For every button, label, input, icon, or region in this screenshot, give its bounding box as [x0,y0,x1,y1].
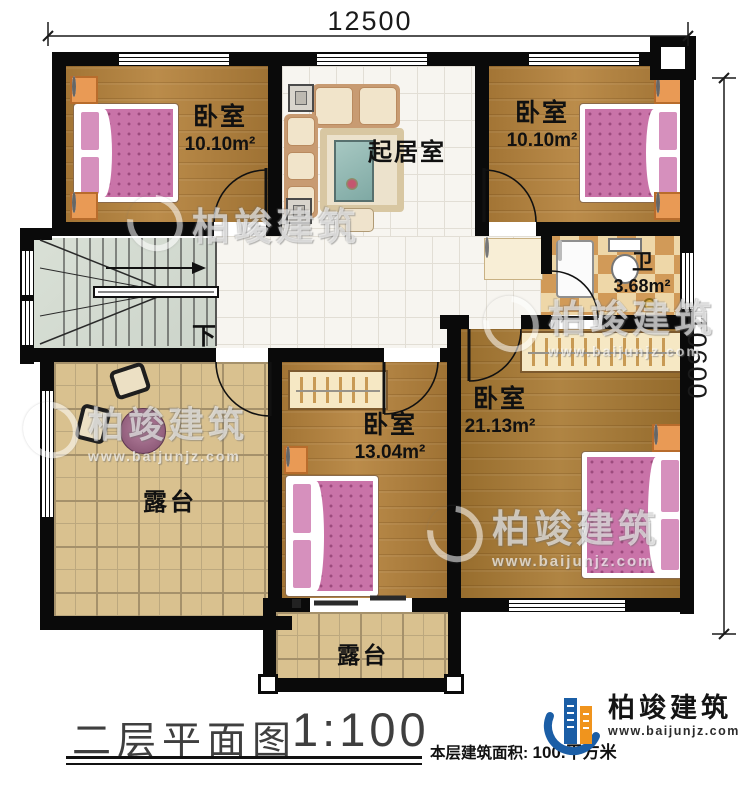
tv-stand [288,84,314,112]
pillows [660,459,680,571]
wardrobe-rod [528,352,676,354]
brand-logo: 柏竣建筑 www.baijunjz.com [540,694,740,764]
brand-building-icon [540,694,604,764]
wall [52,222,214,236]
ottoman [338,208,374,232]
title-underline-thin [66,763,422,765]
wall [20,228,52,240]
wall [475,222,484,236]
window [528,52,640,66]
room-label-bedroom-large: 卧室 21.13m² [440,384,560,439]
pillows [658,111,678,195]
washing-machine [556,240,594,298]
lamp-icon [72,192,76,213]
pillows [80,111,100,195]
room-label-bedroom-top-right: 卧室 10.10m² [482,98,602,153]
wardrobe [288,370,388,410]
window [316,52,428,66]
pin-decor [643,298,656,311]
lamp-icon [656,192,660,213]
plan-scale: 1:100 [292,702,430,757]
window [508,598,626,612]
floor-plan: 12500 10600 [0,0,750,785]
lamp-icon [72,76,76,97]
quilt [316,481,373,591]
terrace-railing [40,390,54,518]
nightstand [284,446,308,474]
room-label-living: 起居室 [352,138,462,168]
dimension-width-label: 12500 [290,6,450,37]
room-area-bathroom: 3.68m² [600,276,684,297]
nightstand [652,424,682,452]
lamp-icon [654,424,658,445]
door-handle [292,599,301,608]
bed [286,476,378,596]
sink-icon [485,237,489,258]
vanity-counter [484,238,543,280]
wall [266,222,282,236]
dimension-height-label: 10600 [681,288,712,428]
room-label-bedroom-middle: 卧室 13.04m² [330,410,450,465]
corner-pillar [258,674,278,694]
wall [268,348,282,612]
pillows [292,483,312,589]
brand-website: www.baijunjz.com [608,724,740,738]
wall [536,222,694,236]
nightstand [70,192,98,220]
wall [263,678,461,692]
patio-table [120,408,166,454]
stairwell-floor [34,238,216,348]
lamp-icon [286,446,290,467]
window [118,52,230,66]
bed [582,452,686,578]
room-label-bathroom: 卫 [632,246,653,276]
quilt [587,457,656,573]
nightstand [654,76,682,104]
nightstand [70,76,98,104]
wardrobe [520,331,684,373]
room-label-terrace-bottom: 露台 [318,636,408,670]
window [20,300,34,346]
wall [521,315,551,329]
room-label-bedroom-top-left: 卧室 10.10m² [160,102,280,157]
flower-decor [346,178,358,190]
wall [541,236,552,274]
window [20,250,34,296]
wall [440,348,447,362]
sofa [312,84,400,128]
room-label-terrace-left: 露台 [125,482,215,517]
wall [270,348,384,362]
title-underline [66,756,422,759]
washer-drum [558,240,562,261]
side-table [286,198,312,224]
nightstand [654,192,682,220]
wall [52,52,66,236]
chimney [650,36,696,80]
corner-pillar [444,674,464,694]
brand-name: 柏竣建筑 [608,694,740,724]
wardrobe-rod [296,390,380,392]
stairs-direction-label: 下 [192,316,216,351]
wall [40,616,292,630]
